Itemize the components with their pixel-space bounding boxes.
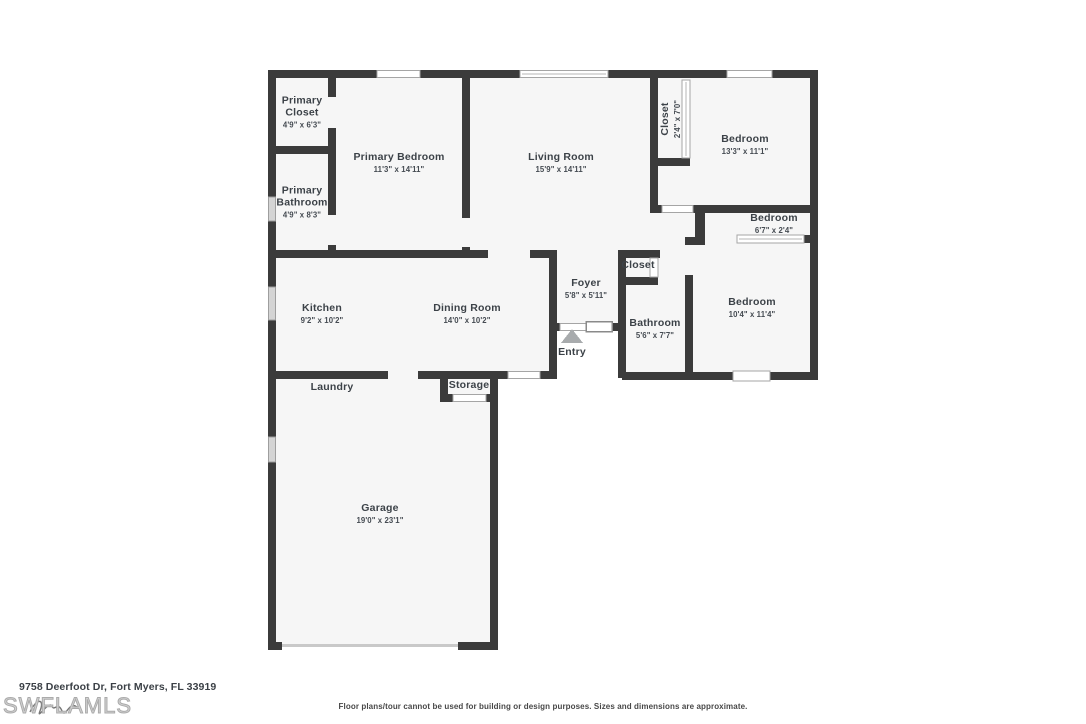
room-label-bedroom-1: Bedroom 13'3" x 11'1" [721, 134, 769, 156]
room-label-living-room: Living Room 15'9" x 14'11" [528, 152, 594, 174]
room-name: Bedroom [721, 134, 769, 146]
room-name: Kitchen [301, 303, 344, 315]
room-dims: 4'9" x 6'3" [273, 120, 331, 129]
room-label-closet-top: Closet 2'4" x 7'0" [660, 100, 682, 138]
room-name: Dining Room [433, 303, 501, 315]
room-name: Entry [558, 347, 586, 359]
room-name: Laundry [311, 382, 354, 394]
room-name: Primary Bedroom [353, 152, 444, 164]
room-label-primary-bedroom: Primary Bedroom 11'3" x 14'11" [353, 152, 444, 174]
disclaimer-text: Floor plans/tour cannot be used for buil… [0, 702, 1086, 711]
room-dims: 11'3" x 14'11" [353, 165, 444, 174]
room-dims: 5'6" x 7'7" [629, 331, 680, 340]
room-name: Foyer [565, 278, 607, 290]
room-name: Bathroom [629, 318, 680, 330]
room-label-bedroom-2: Bedroom 10'4" x 11'4" [728, 297, 776, 319]
room-name: Bedroom [728, 297, 776, 309]
room-label-dining-room: Dining Room 14'0" x 10'2" [433, 303, 501, 325]
room-label-foyer: Foyer 5'8" x 5'11" [565, 278, 607, 300]
room-label-foyer-closet: Closet [621, 260, 654, 272]
room-name: Primary Closet [273, 95, 331, 119]
room-dims: 4'9" x 8'3" [267, 210, 337, 219]
room-name: Bedroom [750, 213, 798, 225]
room-label-laundry: Laundry [311, 382, 354, 394]
room-label-bedroom-closet-strip: Bedroom 6'7" x 2'4" [750, 213, 798, 235]
room-name: Closet [621, 260, 654, 272]
room-dims: 14'0" x 10'2" [433, 316, 501, 325]
room-name: Closet [660, 100, 672, 138]
floorplan-drawing [0, 0, 1086, 724]
room-dims: 5'8" x 5'11" [565, 291, 607, 300]
room-label-primary-bathroom: Primary Bathroom 4'9" x 8'3" [267, 185, 337, 219]
room-name: Garage [356, 503, 403, 515]
room-dims: 2'4" x 7'0" [673, 100, 682, 138]
room-dims: 9'2" x 10'2" [301, 316, 344, 325]
floorplan-page: Primary Closet 4'9" x 6'3" Primary Bedro… [0, 0, 1086, 724]
room-dims: 15'9" x 14'11" [528, 165, 594, 174]
room-name: Living Room [528, 152, 594, 164]
room-name: Storage [449, 380, 490, 392]
room-label-kitchen: Kitchen 9'2" x 10'2" [301, 303, 344, 325]
room-label-garage: Garage 19'0" x 23'1" [356, 503, 403, 525]
garage-door-line [282, 644, 458, 647]
room-label-entry: Entry [558, 347, 586, 359]
room-name: Primary Bathroom [267, 185, 337, 209]
room-label-primary-closet: Primary Closet 4'9" x 6'3" [273, 95, 331, 129]
room-dims: 13'3" x 11'1" [721, 147, 769, 156]
entry-door [586, 322, 612, 332]
room-label-storage: Storage [449, 380, 490, 392]
room-dims: 19'0" x 23'1" [356, 516, 403, 525]
room-dims: 6'7" x 2'4" [750, 226, 798, 235]
room-dims: 10'4" x 11'4" [728, 310, 776, 319]
property-address: 9758 Deerfoot Dr, Fort Myers, FL 33919 [19, 681, 216, 693]
room-label-bathroom: Bathroom 5'6" x 7'7" [629, 318, 680, 340]
